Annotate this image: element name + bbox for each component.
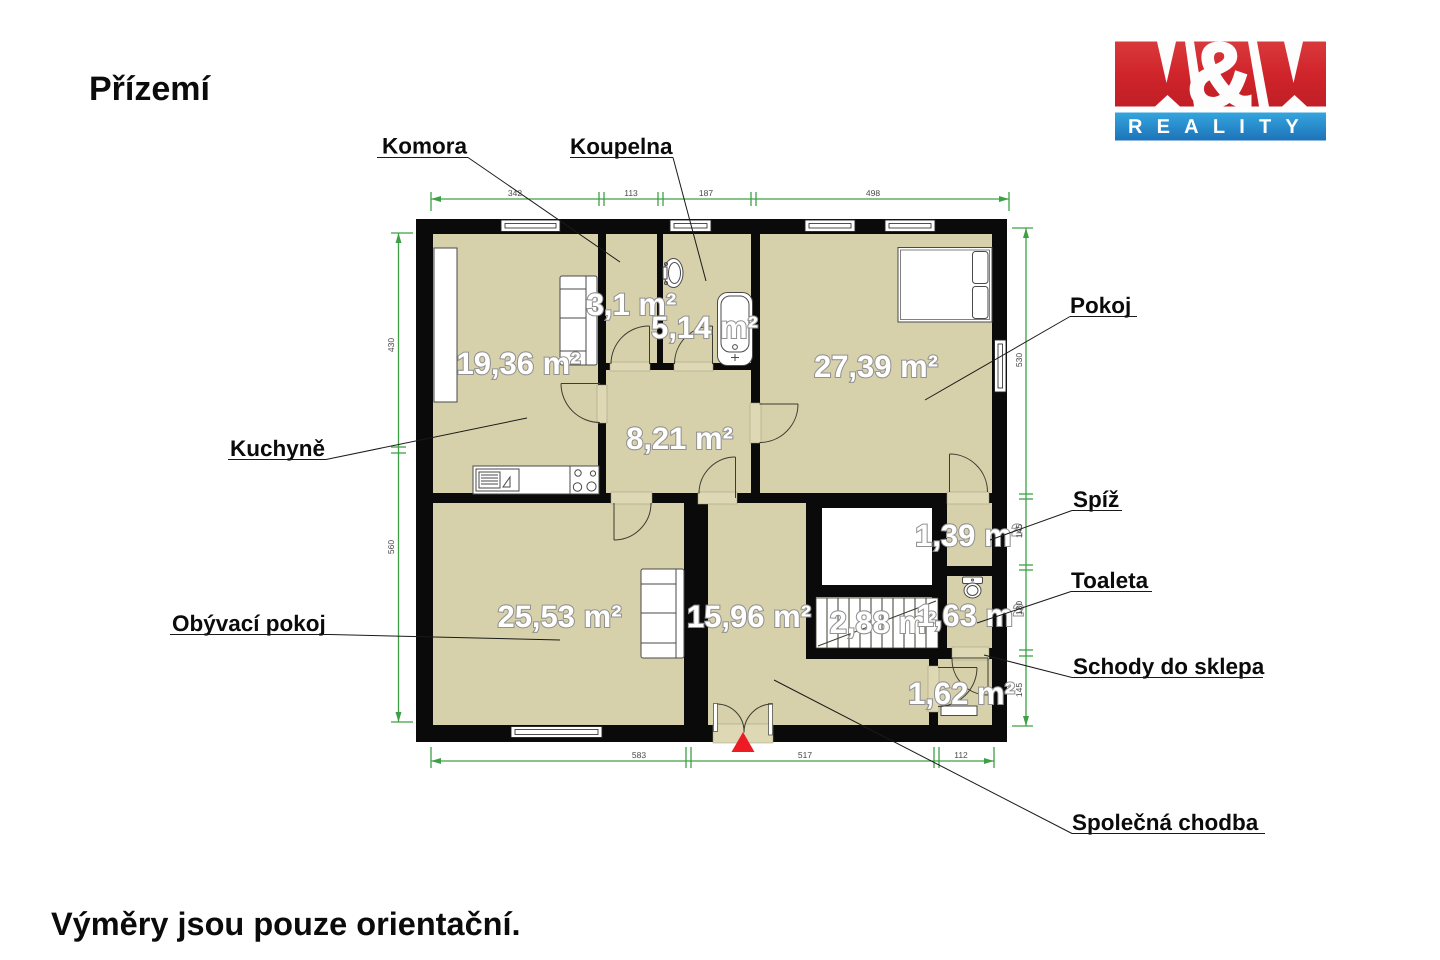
svg-text:Pokoj: Pokoj <box>1070 293 1131 318</box>
svg-text:15,96 m²: 15,96 m² <box>687 599 811 634</box>
svg-text:430: 430 <box>386 338 396 352</box>
svg-text:113: 113 <box>624 188 638 198</box>
svg-text:1,39 m²: 1,39 m² <box>915 518 1022 553</box>
svg-text:112: 112 <box>954 750 968 760</box>
svg-text:Schody do sklepa: Schody do sklepa <box>1073 654 1265 679</box>
svg-text:Výměry jsou pouze orientační.: Výměry jsou pouze orientační. <box>51 906 521 942</box>
svg-text:5,14 m²: 5,14 m² <box>651 310 758 345</box>
svg-text:145: 145 <box>1014 683 1024 697</box>
svg-text:Komora: Komora <box>382 134 467 159</box>
svg-text:Spíž: Spíž <box>1073 487 1119 512</box>
svg-text:1,63 m²: 1,63 m² <box>917 598 1024 633</box>
svg-text:Společná chodba: Společná chodba <box>1072 810 1259 835</box>
svg-text:530: 530 <box>1014 353 1024 367</box>
svg-text:Obývací pokoj: Obývací pokoj <box>172 611 326 636</box>
svg-text:1,62 m²: 1,62 m² <box>908 676 1015 711</box>
svg-text:REALITY: REALITY <box>1128 116 1313 138</box>
svg-text:Toaleta: Toaleta <box>1071 568 1149 593</box>
svg-text:560: 560 <box>386 540 396 554</box>
svg-text:498: 498 <box>866 188 880 198</box>
svg-text:187: 187 <box>699 188 713 198</box>
svg-text:19,36 m²: 19,36 m² <box>456 346 580 381</box>
svg-text:&: & <box>1187 25 1253 126</box>
svg-text:583: 583 <box>632 750 646 760</box>
svg-text:8,21 m²: 8,21 m² <box>626 421 733 456</box>
svg-text:27,39 m²: 27,39 m² <box>814 349 938 384</box>
svg-text:Přízemí: Přízemí <box>89 70 211 108</box>
svg-text:Koupelna: Koupelna <box>570 134 673 159</box>
svg-text:517: 517 <box>798 750 812 760</box>
svg-text:Kuchyně: Kuchyně <box>230 436 325 461</box>
svg-text:25,53 m²: 25,53 m² <box>497 599 621 634</box>
